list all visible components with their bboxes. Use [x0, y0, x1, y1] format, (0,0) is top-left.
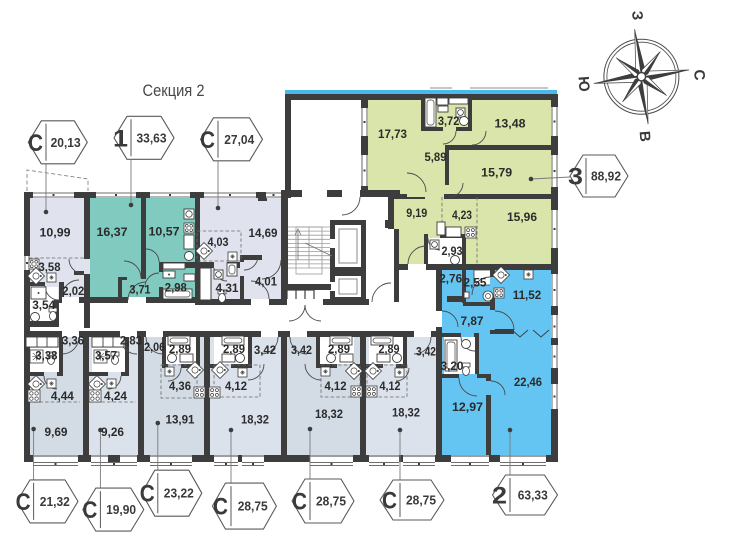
svg-text:33,63: 33,63	[137, 131, 167, 145]
svg-text:3,20: 3,20	[441, 359, 464, 373]
svg-text:28,75: 28,75	[238, 500, 268, 514]
svg-text:13,91: 13,91	[166, 413, 195, 427]
svg-text:4,01: 4,01	[255, 275, 277, 289]
svg-text:4,44: 4,44	[51, 389, 74, 403]
svg-text:63,33: 63,33	[518, 489, 548, 503]
svg-text:3,58: 3,58	[39, 260, 61, 274]
svg-text:3,36: 3,36	[62, 334, 84, 348]
svg-text:С: С	[200, 127, 215, 154]
svg-text:18,32: 18,32	[241, 413, 269, 427]
svg-text:2,89: 2,89	[169, 342, 191, 356]
svg-text:С: С	[140, 481, 155, 508]
svg-text:В: В	[636, 130, 654, 142]
svg-text:2,83: 2,83	[120, 334, 142, 348]
svg-text:2,76: 2,76	[439, 272, 462, 286]
svg-text:21,32: 21,32	[40, 495, 70, 509]
svg-text:2,06: 2,06	[144, 340, 165, 354]
svg-text:4,36: 4,36	[169, 379, 191, 393]
svg-text:2,89: 2,89	[379, 342, 400, 356]
svg-text:3,71: 3,71	[130, 283, 151, 297]
svg-text:7,87: 7,87	[461, 314, 484, 328]
svg-text:2,89: 2,89	[328, 342, 350, 356]
svg-text:4,03: 4,03	[208, 235, 229, 249]
svg-text:2,02: 2,02	[62, 284, 84, 298]
svg-text:С: С	[292, 489, 307, 516]
svg-text:1: 1	[113, 125, 128, 152]
svg-text:3,42: 3,42	[291, 343, 312, 357]
svg-text:28,75: 28,75	[316, 495, 346, 509]
svg-text:17,73: 17,73	[378, 127, 407, 141]
svg-text:С: С	[382, 488, 397, 515]
svg-text:11,52: 11,52	[513, 288, 542, 302]
svg-text:5,89: 5,89	[425, 150, 447, 164]
svg-text:28,75: 28,75	[406, 494, 436, 508]
svg-text:19,90: 19,90	[106, 503, 136, 517]
svg-text:С: С	[82, 497, 97, 524]
svg-text:2,98: 2,98	[165, 281, 187, 295]
svg-text:С: С	[28, 130, 43, 157]
svg-text:Ю: Ю	[574, 76, 592, 93]
svg-text:3,38: 3,38	[35, 349, 57, 363]
svg-text:14,69: 14,69	[249, 226, 278, 240]
svg-text:88,92: 88,92	[591, 170, 621, 184]
svg-text:13,48: 13,48	[495, 117, 526, 131]
svg-text:12,97: 12,97	[452, 400, 483, 414]
svg-text:С: С	[690, 69, 708, 81]
svg-text:9,69: 9,69	[45, 425, 68, 439]
svg-text:3: 3	[568, 164, 583, 191]
svg-text:3,54: 3,54	[32, 298, 55, 312]
svg-text:2,89: 2,89	[223, 342, 245, 356]
svg-text:20,13: 20,13	[51, 136, 81, 150]
svg-text:23,22: 23,22	[164, 487, 194, 501]
svg-text:4,24: 4,24	[104, 389, 127, 403]
svg-text:3,72: 3,72	[438, 114, 460, 128]
svg-text:15,79: 15,79	[481, 166, 512, 180]
svg-text:З: З	[628, 10, 646, 21]
svg-text:2: 2	[492, 483, 507, 510]
svg-text:С: С	[213, 494, 228, 521]
svg-text:18,32: 18,32	[392, 406, 420, 420]
svg-text:С: С	[16, 489, 31, 516]
svg-text:16,37: 16,37	[97, 225, 128, 239]
svg-text:18,32: 18,32	[315, 407, 343, 421]
svg-text:4,12: 4,12	[380, 379, 401, 393]
svg-text:3,42: 3,42	[416, 345, 436, 359]
svg-text:3,57: 3,57	[95, 349, 117, 363]
svg-text:4,12: 4,12	[225, 379, 247, 393]
svg-text:4,12: 4,12	[325, 379, 347, 393]
svg-text:22,46: 22,46	[514, 375, 542, 389]
svg-text:10,57: 10,57	[149, 225, 180, 239]
svg-text:3,42: 3,42	[254, 343, 276, 357]
svg-text:2,93: 2,93	[442, 244, 463, 258]
svg-text:4,31: 4,31	[216, 281, 239, 295]
svg-text:Секция 2: Секция 2	[143, 82, 205, 100]
svg-text:9,19: 9,19	[406, 206, 427, 220]
svg-text:2,55: 2,55	[464, 276, 487, 290]
svg-text:27,04: 27,04	[224, 133, 254, 147]
svg-text:10,99: 10,99	[40, 226, 71, 240]
svg-text:4,23: 4,23	[452, 208, 472, 222]
svg-text:15,96: 15,96	[507, 210, 537, 224]
svg-text:9,26: 9,26	[101, 425, 124, 439]
